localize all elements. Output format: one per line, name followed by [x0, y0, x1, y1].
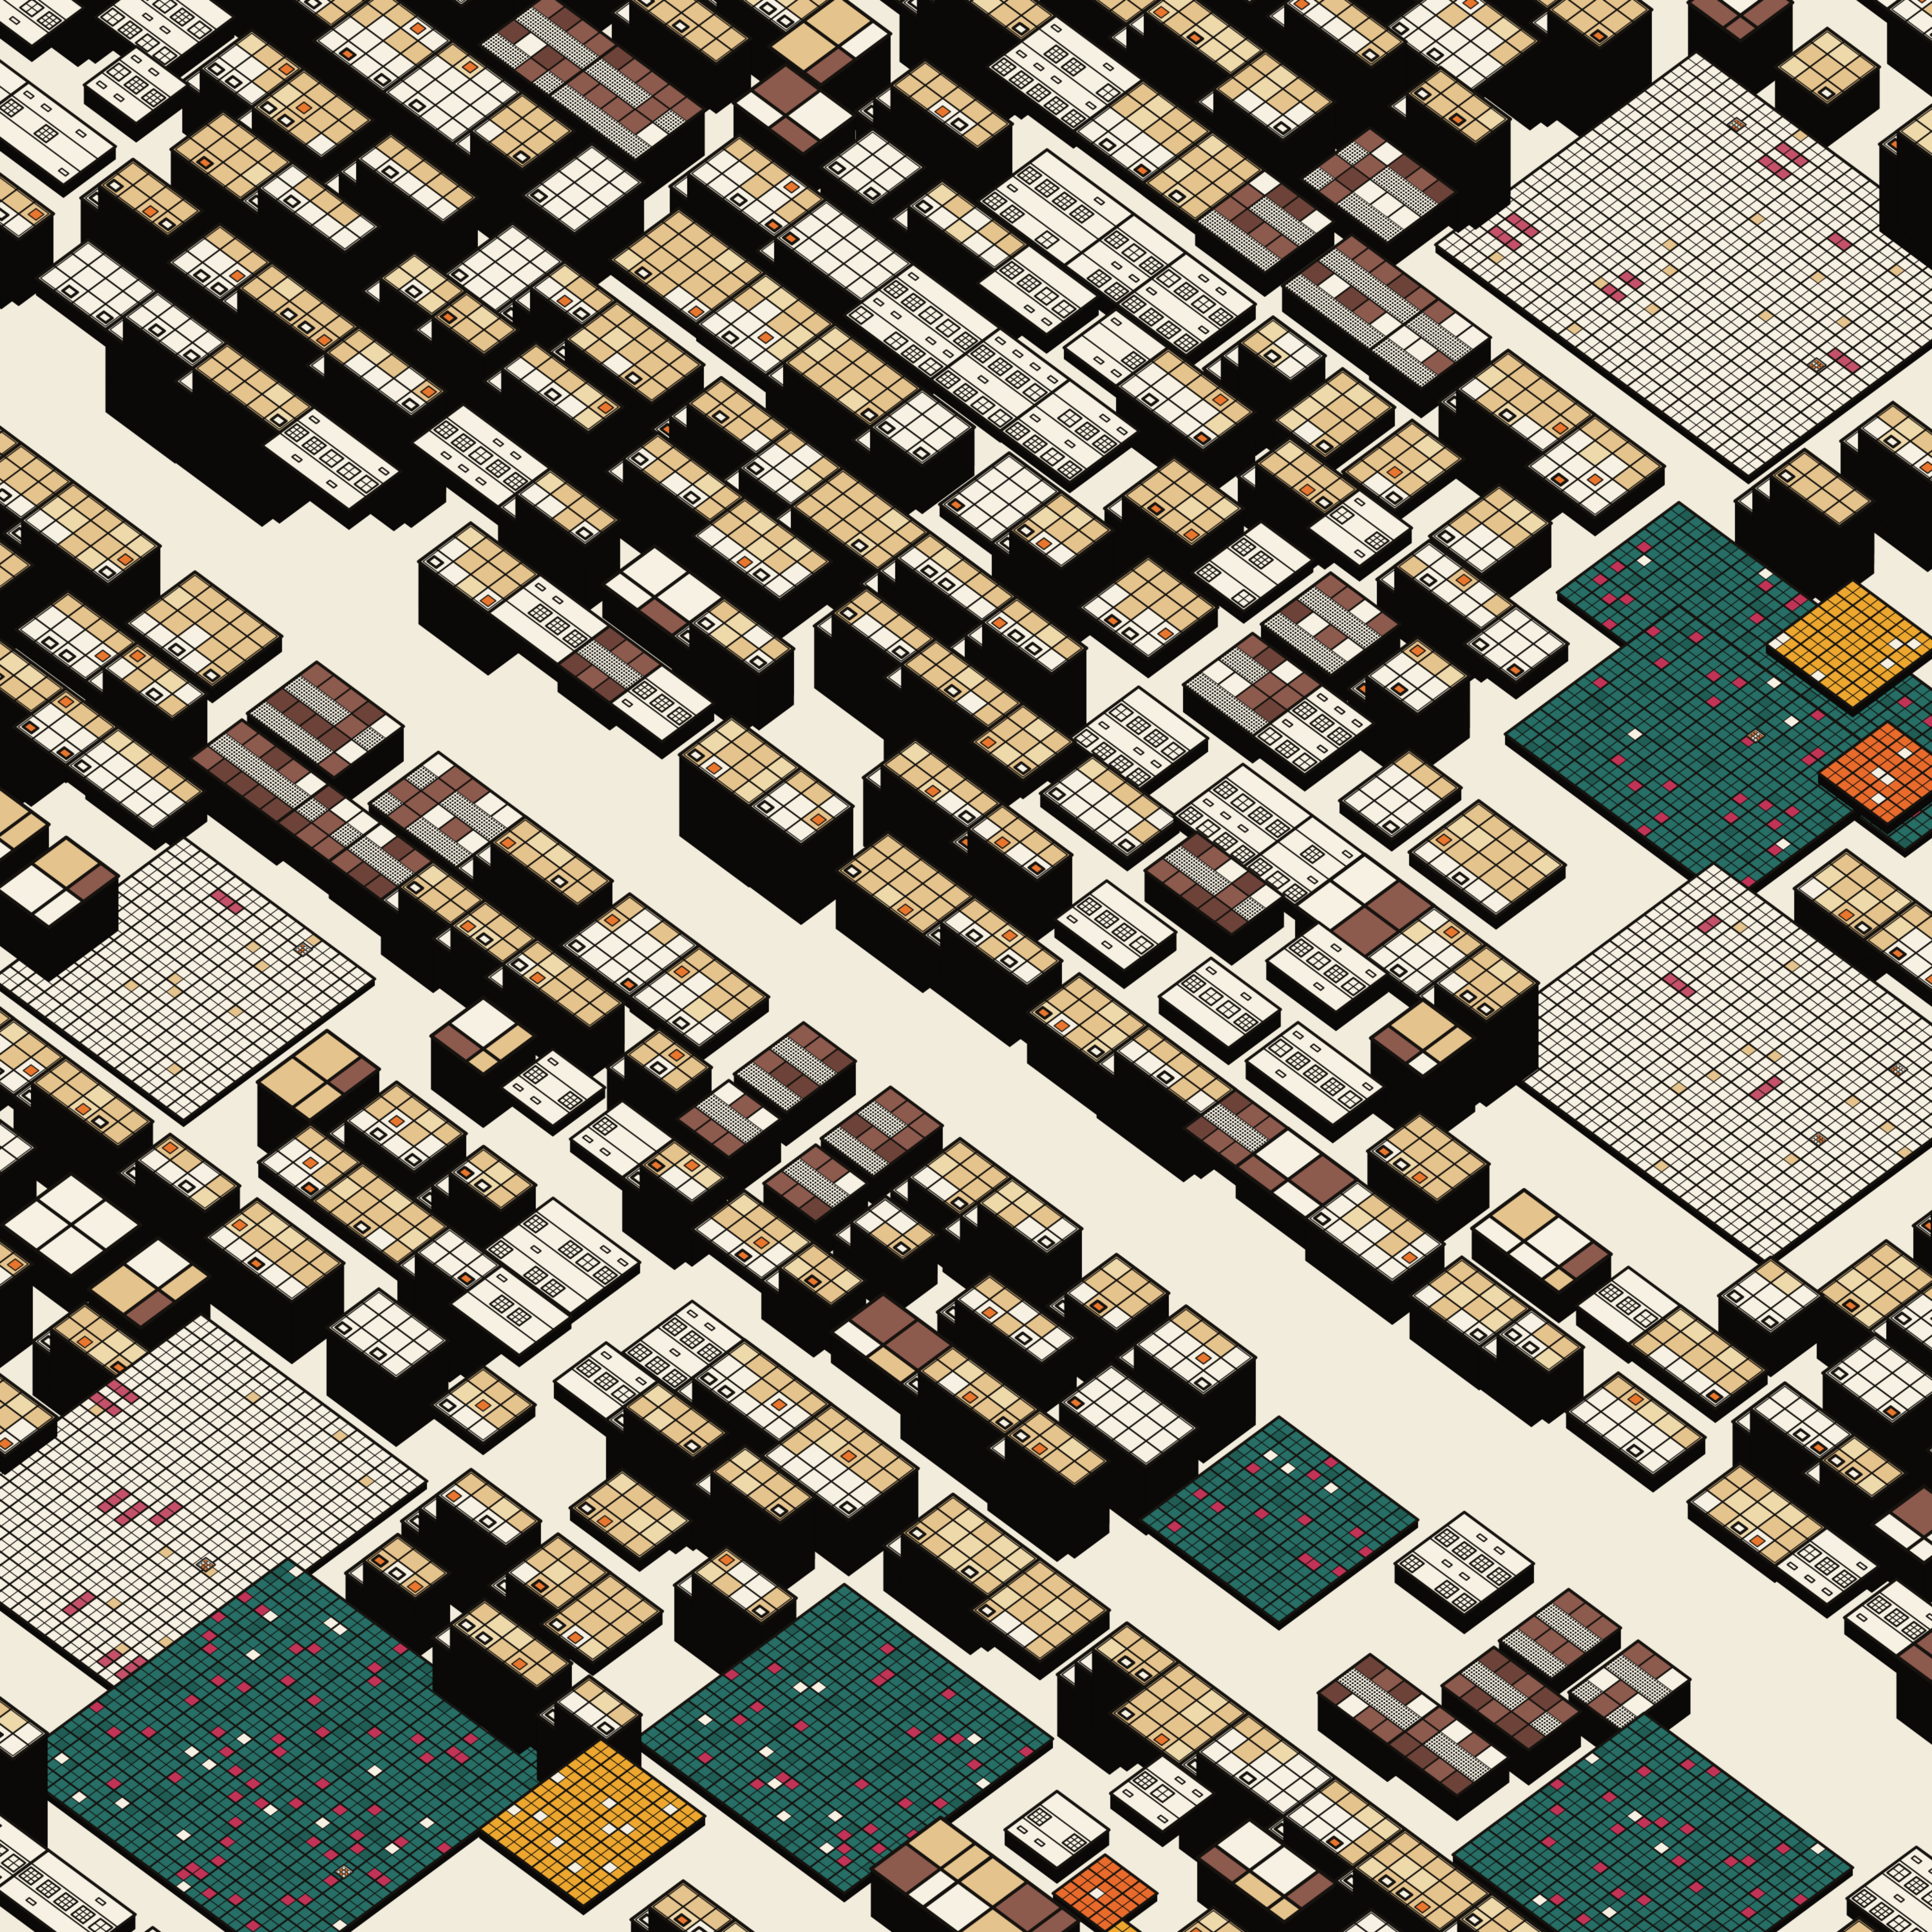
generative-artwork — [0, 0, 1932, 1932]
isometric-city-canvas — [0, 0, 1932, 1932]
